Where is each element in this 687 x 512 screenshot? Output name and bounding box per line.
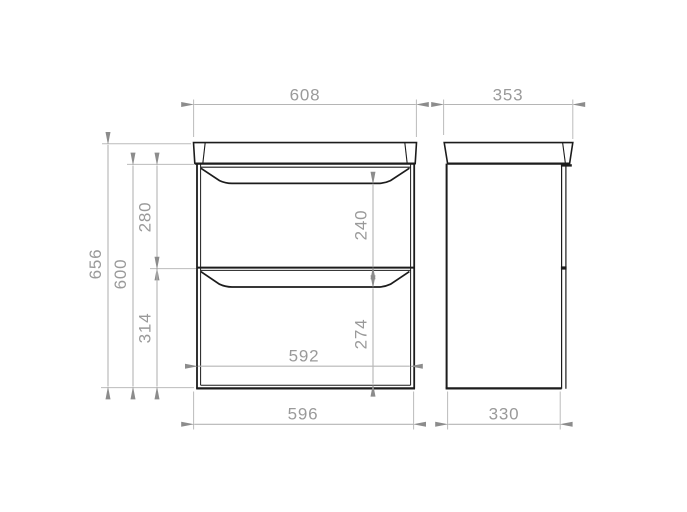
side-drawer-front-strip	[561, 165, 572, 388]
dim-front-body-width: 596	[194, 392, 414, 430]
side-cabinet-body	[446, 164, 562, 389]
dim-front-top-section-height: 280	[136, 166, 197, 269]
dim-label-608: 608	[290, 86, 321, 105]
dim-front-body-height: 600	[111, 164, 195, 386]
dimension-drawing: 608 656 600 280 314 240 274 592	[0, 0, 687, 512]
dim-front-bottom-section-height: 314	[136, 270, 158, 387]
dim-front-inner-width: 592	[198, 347, 410, 367]
dim-side-countertop-depth: 353	[444, 86, 573, 140]
dim-front-top-drawer-inner: 240	[352, 185, 374, 266]
drawing-canvas: 608 656 600 280 314 240 274 592	[0, 0, 687, 512]
front-drawer-divider	[197, 268, 414, 271]
dim-front-bottom-drawer-inner: 274	[352, 288, 374, 383]
dim-label-274: 274	[352, 319, 371, 350]
front-top-drawer	[201, 167, 411, 183]
dim-label-600: 600	[111, 259, 130, 290]
dim-label-592: 592	[289, 347, 320, 366]
dim-label-314: 314	[136, 313, 155, 344]
dim-label-353: 353	[493, 86, 524, 105]
dim-front-countertop-width: 608	[194, 86, 417, 138]
dim-label-330: 330	[489, 405, 520, 424]
dim-front-total-height: 656	[86, 144, 194, 388]
side-view	[444, 143, 573, 389]
dim-label-596: 596	[288, 405, 319, 424]
dim-side-body-depth: 330	[448, 392, 561, 430]
front-countertop	[194, 143, 417, 164]
dim-label-240: 240	[352, 210, 371, 241]
dim-label-280: 280	[136, 202, 155, 233]
dim-label-656: 656	[86, 249, 105, 280]
side-countertop	[444, 143, 573, 164]
front-bottom-drawer	[201, 272, 410, 287]
